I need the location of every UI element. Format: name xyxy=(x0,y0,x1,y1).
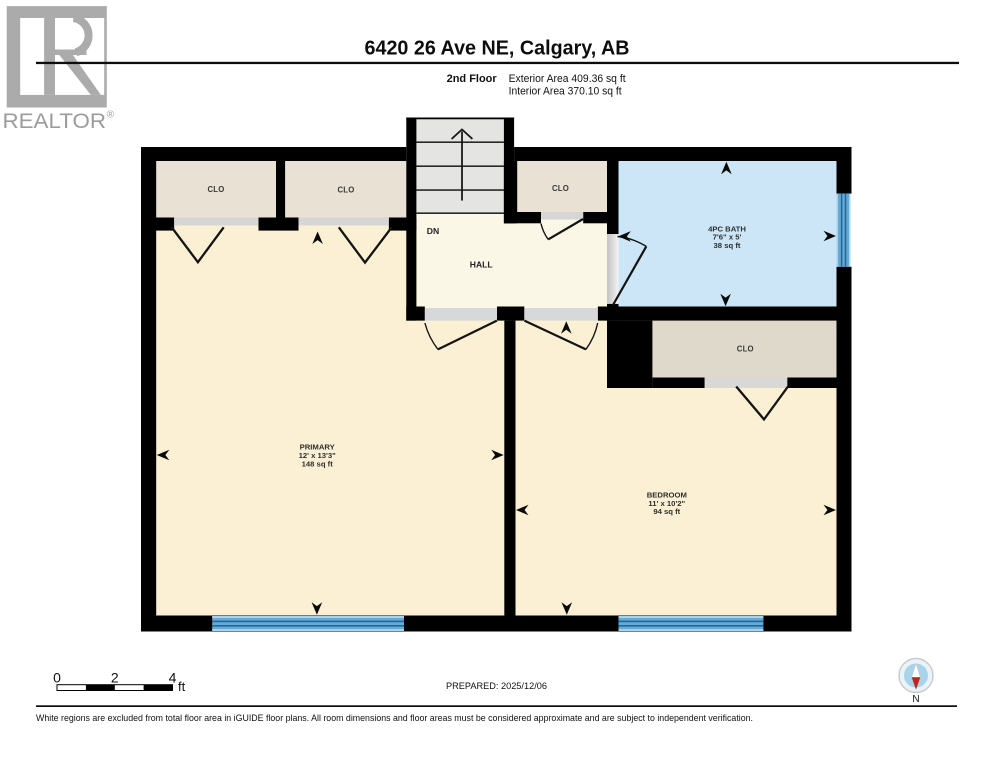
svg-text:®: ® xyxy=(107,110,115,121)
svg-text:ft: ft xyxy=(178,679,186,694)
svg-text:Exterior Area 409.36 sq ft: Exterior Area 409.36 sq ft xyxy=(509,73,626,85)
svg-text:CLO: CLO xyxy=(337,186,354,195)
svg-text:4: 4 xyxy=(169,670,177,686)
svg-text:CLO: CLO xyxy=(207,185,224,194)
svg-text:38 sq ft: 38 sq ft xyxy=(714,241,741,250)
svg-text:CLO: CLO xyxy=(737,345,754,354)
svg-text:REALTOR: REALTOR xyxy=(3,110,107,133)
svg-text:148 sq ft: 148 sq ft xyxy=(302,459,334,468)
svg-text:PREPARED: 2025/12/06: PREPARED: 2025/12/06 xyxy=(446,681,547,691)
svg-text:0: 0 xyxy=(53,670,61,686)
svg-text:2nd Floor: 2nd Floor xyxy=(447,73,498,85)
svg-text:N: N xyxy=(912,694,919,705)
svg-text:HALL: HALL xyxy=(470,259,493,269)
svg-text:94 sq ft: 94 sq ft xyxy=(653,507,680,516)
svg-text:White regions are excluded fro: White regions are excluded from total fl… xyxy=(36,713,753,723)
svg-text:6420 26 Ave NE, Calgary, AB: 6420 26 Ave NE, Calgary, AB xyxy=(365,37,630,60)
svg-text:2: 2 xyxy=(111,670,119,686)
svg-text:Interior Area 370.10 sq ft: Interior Area 370.10 sq ft xyxy=(509,86,622,98)
svg-text:CLO: CLO xyxy=(552,184,569,193)
svg-text:DN: DN xyxy=(427,226,439,236)
